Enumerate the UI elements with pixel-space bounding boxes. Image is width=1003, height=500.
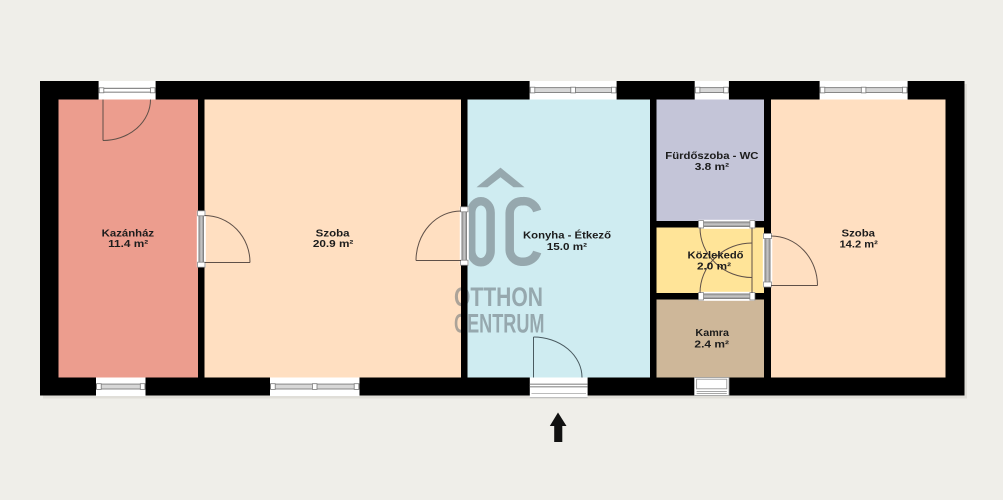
svg-text:20.9 m²: 20.9 m² [313, 239, 354, 250]
svg-text:Kamra: Kamra [695, 328, 729, 339]
svg-text:Közlekedő: Közlekedő [688, 250, 744, 261]
svg-text:2.0 m²: 2.0 m² [697, 262, 732, 273]
svg-text:3.8 m²: 3.8 m² [695, 162, 730, 173]
svg-text:CENTRUM: CENTRUM [454, 309, 545, 339]
svg-text:15.0 m²: 15.0 m² [547, 242, 588, 253]
svg-text:Fürdőszoba - WC: Fürdőszoba - WC [665, 151, 759, 162]
svg-text:14.2 m²: 14.2 m² [840, 239, 879, 250]
svg-text:Szoba: Szoba [842, 228, 876, 239]
svg-text:Kazánház: Kazánház [102, 228, 154, 239]
svg-text:Szoba: Szoba [316, 228, 350, 239]
svg-text:2.4 m²: 2.4 m² [694, 340, 729, 351]
svg-text:Konyha - Étkező: Konyha - Étkező [523, 228, 611, 241]
svg-text:11.4 m²: 11.4 m² [108, 239, 149, 250]
